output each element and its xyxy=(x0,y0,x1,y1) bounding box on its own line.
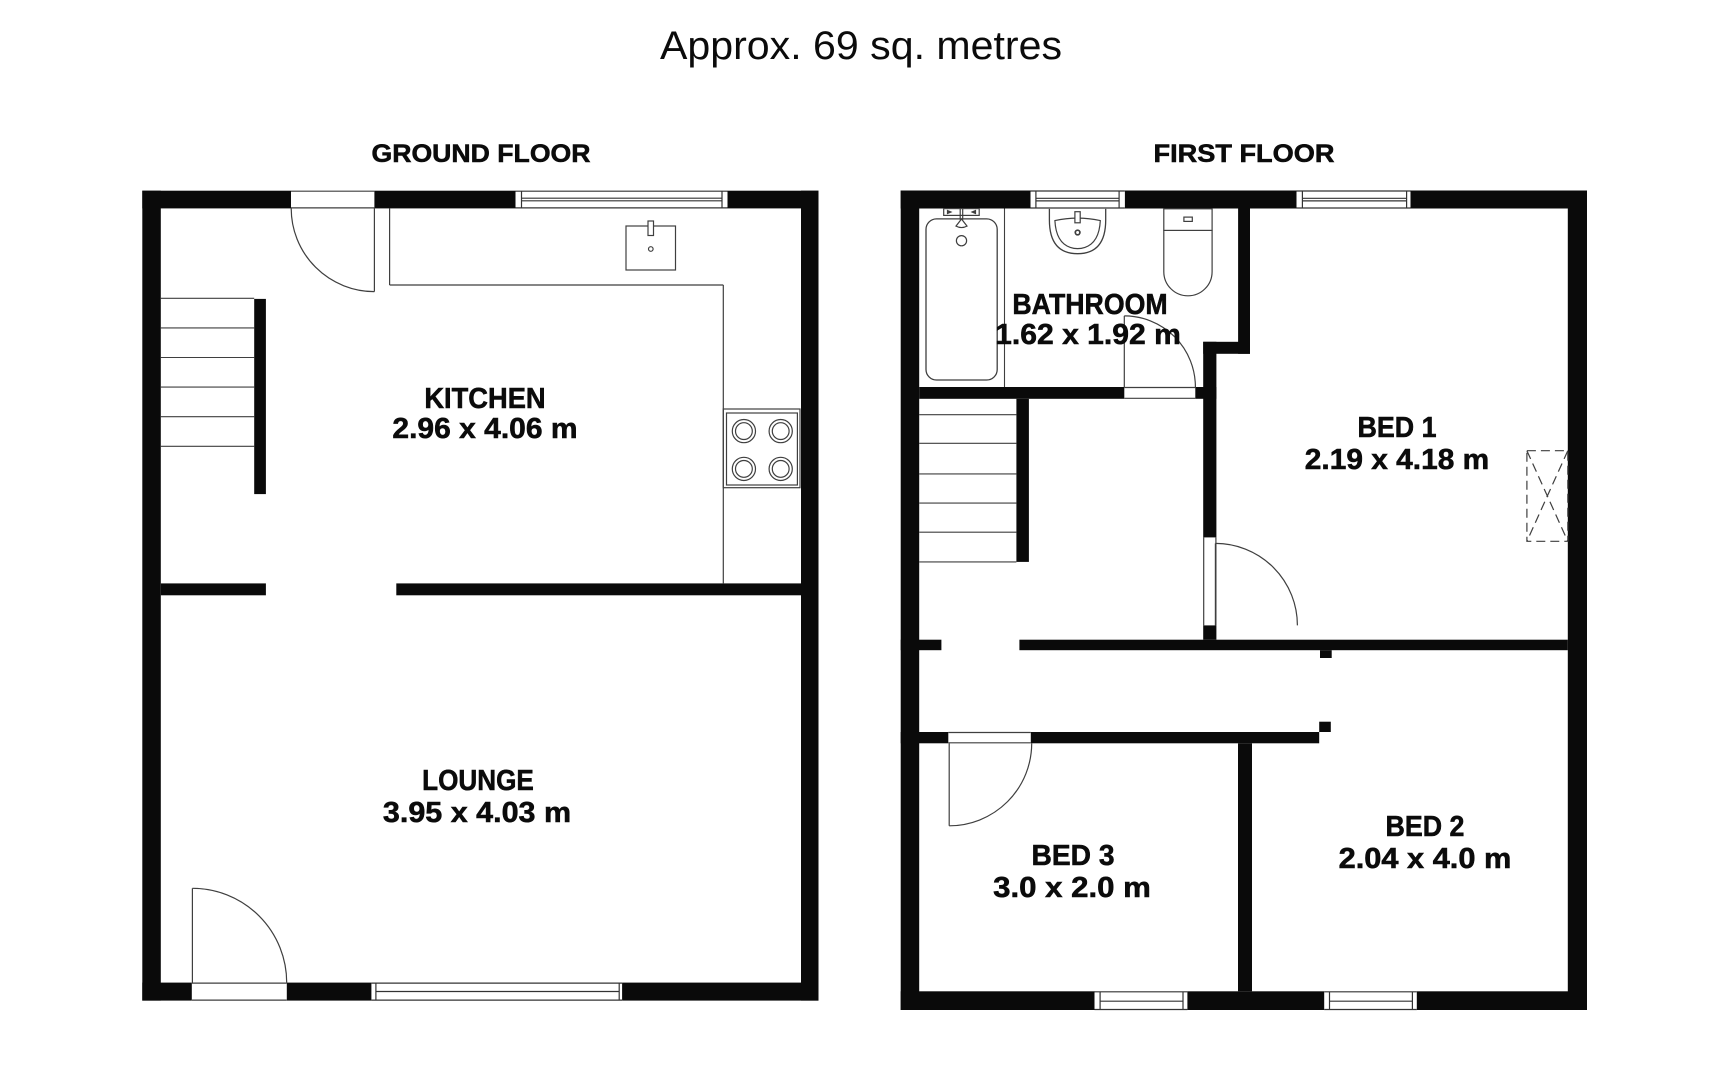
svg-text:LOUNGE: LOUNGE xyxy=(422,765,534,797)
svg-text:2.19 x 4.18 m: 2.19 x 4.18 m xyxy=(1305,444,1489,476)
svg-text:BATHROOM: BATHROOM xyxy=(1012,289,1167,321)
svg-text:BED 2: BED 2 xyxy=(1386,811,1465,843)
svg-text:BED 3: BED 3 xyxy=(1032,840,1115,872)
svg-text:BED 1: BED 1 xyxy=(1358,412,1437,444)
svg-text:GROUND FLOOR: GROUND FLOOR xyxy=(372,140,591,168)
svg-text:FIRST FLOOR: FIRST FLOOR xyxy=(1154,140,1335,168)
svg-text:3.95 x 4.03 m: 3.95 x 4.03 m xyxy=(383,797,571,829)
svg-text:1.62 x 1.92 m: 1.62 x 1.92 m xyxy=(995,319,1181,351)
svg-text:2.04 x 4.0 m: 2.04 x 4.0 m xyxy=(1339,843,1512,875)
svg-text:Approx. 69 sq. metres: Approx. 69 sq. metres xyxy=(660,24,1062,68)
svg-text:KITCHEN: KITCHEN xyxy=(424,383,545,415)
svg-text:2.96 x 4.06 m: 2.96 x 4.06 m xyxy=(392,413,577,445)
svg-text:3.0 x 2.0 m: 3.0 x 2.0 m xyxy=(993,872,1151,904)
